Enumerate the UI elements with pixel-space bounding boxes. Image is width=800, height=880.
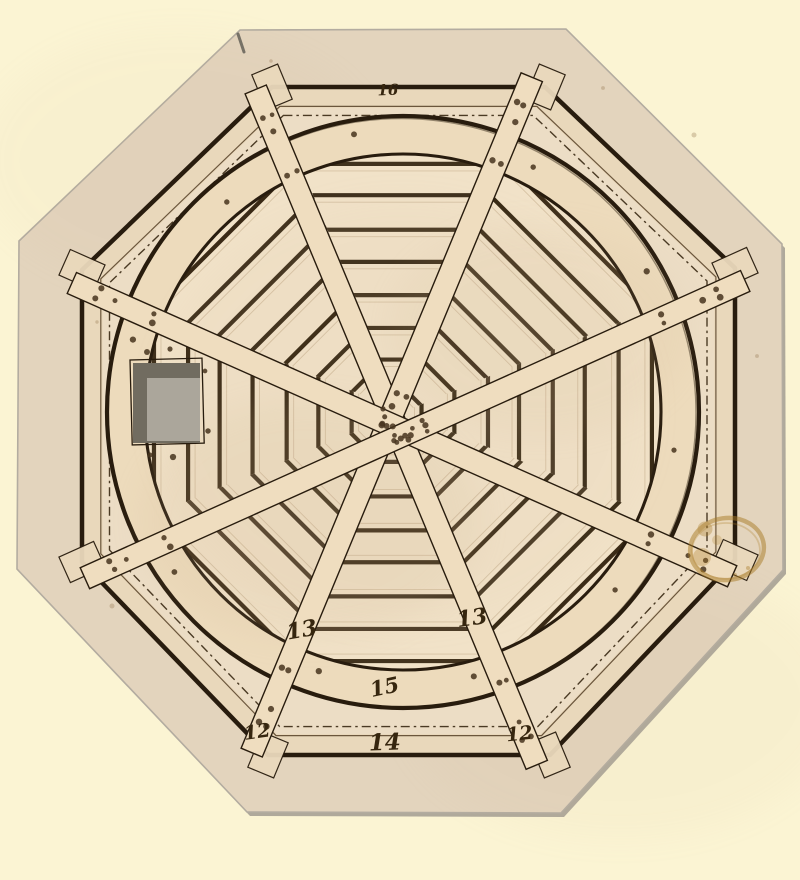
- handwritten-number: 12: [505, 722, 534, 747]
- foxing-speck: [269, 59, 273, 63]
- foxing-speck: [691, 132, 696, 137]
- scanned-drawing-page: 16131315141212: [0, 0, 800, 880]
- handwritten-number: 13: [455, 603, 489, 633]
- hatch-opening: [130, 358, 204, 445]
- foxing-speck: [601, 86, 605, 90]
- handwritten-number: 16: [377, 81, 399, 100]
- octagonal-wheel-plan-drawing: 16131315141212: [0, 0, 800, 880]
- handwritten-number: 14: [368, 728, 401, 756]
- foxing-speck: [755, 354, 759, 358]
- foxing-speck: [110, 604, 115, 609]
- foxing-speck: [95, 320, 98, 323]
- handwritten-number: 12: [243, 719, 272, 744]
- handwritten-number: 13: [284, 615, 319, 646]
